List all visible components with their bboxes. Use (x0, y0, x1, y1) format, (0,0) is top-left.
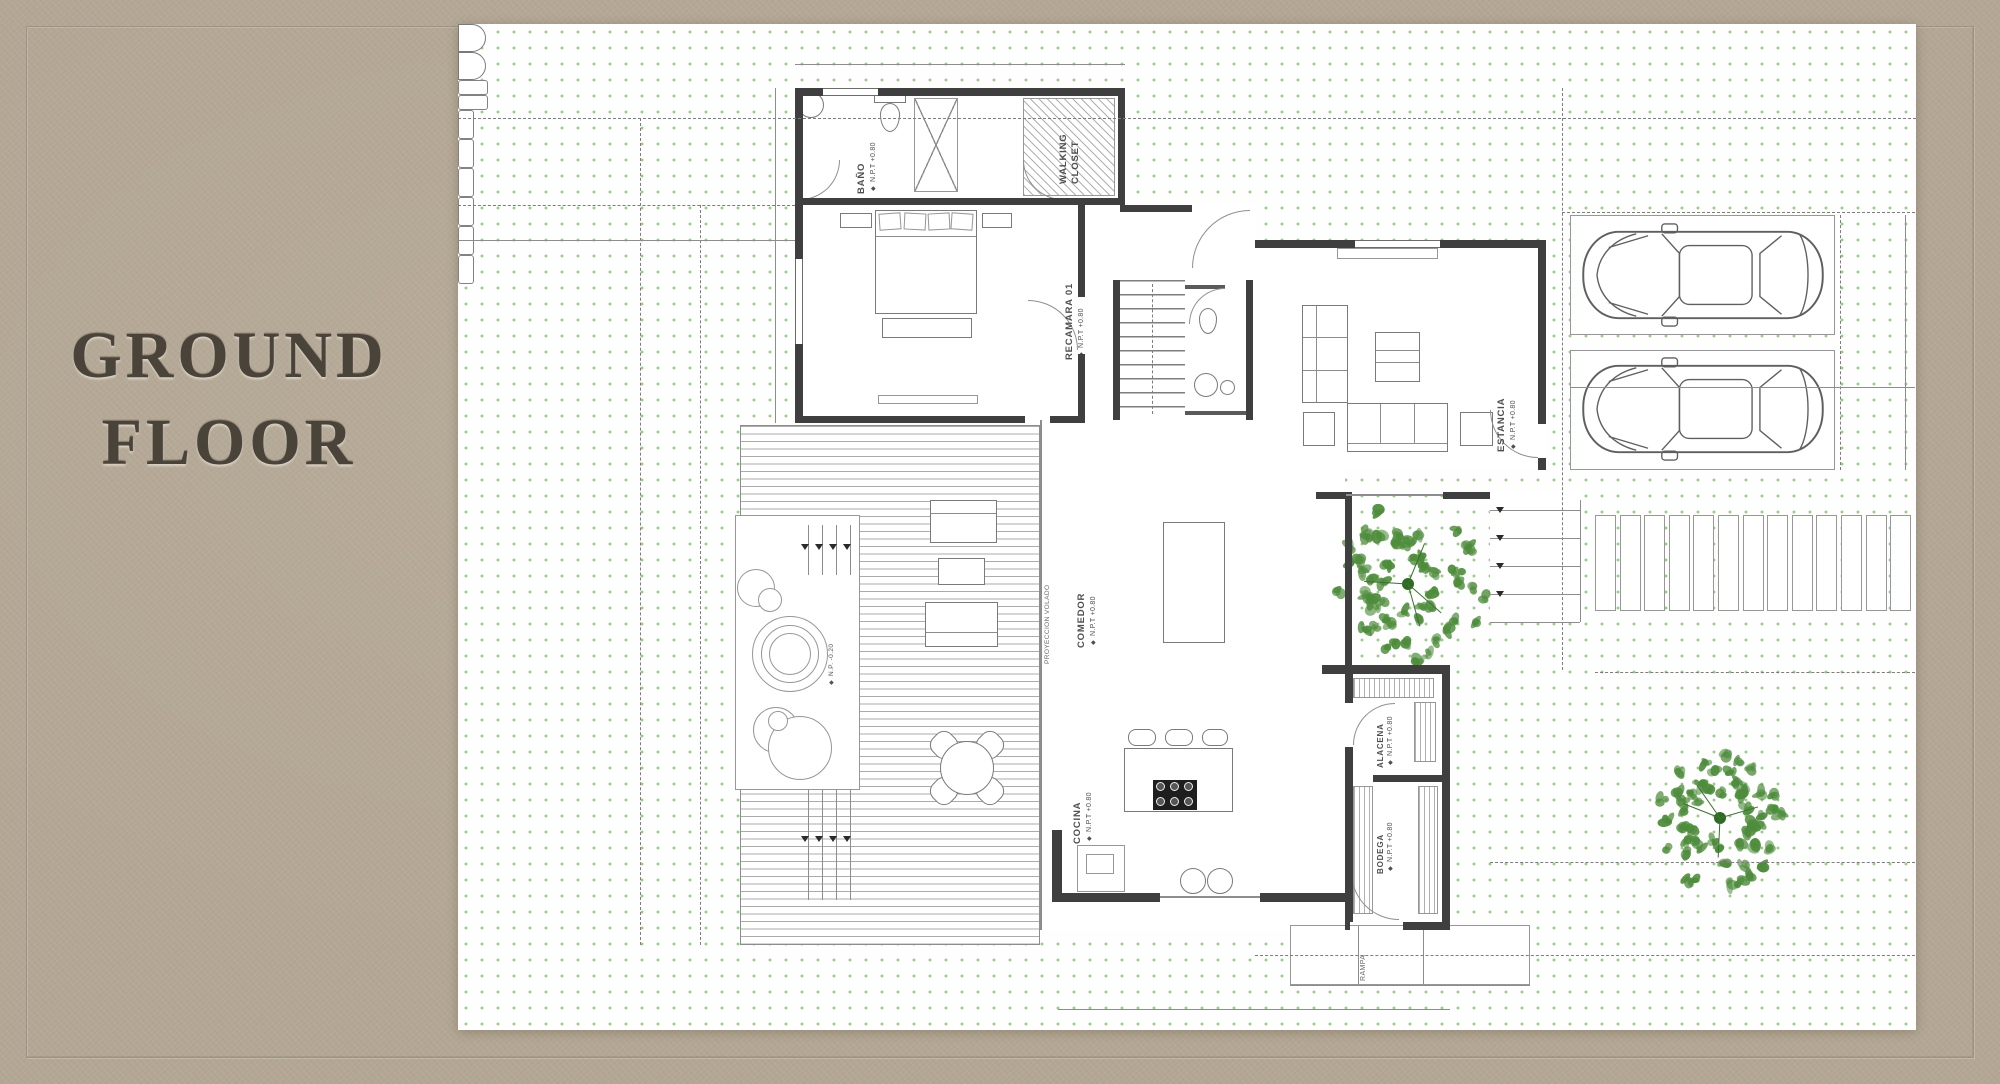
wall (1538, 458, 1546, 470)
wall (1538, 240, 1546, 424)
step-line (1490, 622, 1580, 623)
paver (1669, 515, 1690, 611)
shower-icon (914, 98, 958, 192)
paver (1767, 515, 1788, 611)
paver (1620, 515, 1641, 611)
sofa-cushion-line (1414, 404, 1415, 444)
boundary-dashed-line (700, 205, 701, 945)
paver (1693, 515, 1714, 611)
water-level-label: ◆ N.P. -0.20 (828, 622, 837, 686)
step-line (850, 790, 851, 900)
paver (1890, 515, 1911, 611)
level-text: N.P.T +0.80 (1078, 309, 1087, 349)
level-diamond-icon: ◆ (1511, 443, 1517, 450)
car-icon (1578, 356, 1828, 462)
wall (1246, 280, 1253, 420)
room-label-comedor: COMEDOR ◆ N.P.T +0.80 (1076, 548, 1100, 648)
step-arrow-icon (801, 544, 809, 550)
step-arrow-icon (815, 836, 823, 842)
wall (1118, 88, 1125, 205)
sofa-cushion-line (1303, 370, 1347, 371)
level-diamond-icon: ◆ (1091, 639, 1097, 646)
step-arrow-icon (843, 544, 851, 550)
level-text: N.P.T +0.80 (870, 143, 879, 183)
sofa-cushion-line (1316, 306, 1317, 402)
paver (1866, 515, 1887, 611)
dimension-line (1346, 494, 1443, 496)
boundary-dashed-line (1840, 215, 1841, 470)
room-name: RECAMARA 01 (1064, 283, 1076, 360)
wall (1058, 893, 1160, 902)
sofa-back-line (931, 513, 996, 514)
level-text: N.P.T +0.80 (1510, 401, 1519, 441)
wall (1120, 205, 1192, 212)
window (823, 88, 878, 96)
pillow (878, 212, 901, 230)
bar-stool (1128, 729, 1156, 746)
step-line (836, 790, 837, 900)
dining-chair (458, 80, 488, 95)
boulder (768, 711, 788, 731)
side-table (1303, 412, 1335, 446)
outdoor-table (938, 558, 985, 585)
step-arrow-icon (829, 836, 837, 842)
drain-icon (1220, 380, 1235, 395)
wall (795, 416, 1025, 423)
dining-chair (458, 110, 474, 139)
dining-chair (458, 139, 474, 168)
planter-icon (1207, 868, 1233, 894)
wall (795, 198, 1125, 205)
title-line-1: GROUND (0, 312, 458, 399)
room-name: COCINA (1072, 802, 1084, 844)
paver (1595, 515, 1616, 611)
step-arrow-icon (829, 544, 837, 550)
wall (1078, 205, 1085, 297)
level-text: N.P.T +0.80 (1387, 823, 1396, 863)
boundary-dashed-line (640, 118, 641, 945)
tree-icon (1315, 491, 1501, 677)
armchair (458, 24, 486, 52)
water-feature-ring (769, 633, 811, 675)
boundary-dashed-line (1595, 672, 1915, 673)
sofa (1347, 403, 1448, 452)
step-arrow-icon (1496, 591, 1504, 597)
nightstand (982, 213, 1012, 228)
wall (1403, 922, 1450, 930)
room-level: ◆ N.P.T +0.80 (1387, 823, 1396, 872)
projection-text: PROYECCION VOLADO (1044, 585, 1052, 664)
wall (1345, 747, 1353, 922)
pillow (950, 212, 973, 230)
step-line (836, 525, 837, 575)
stair-direction-line (1152, 284, 1153, 414)
projection-label: PROYECCION VOLADO (1044, 544, 1052, 664)
table-line (1376, 350, 1419, 351)
dining-chair (458, 255, 474, 284)
step-line (808, 525, 809, 575)
car-icon (1578, 222, 1828, 328)
coffee-table (1375, 332, 1420, 382)
boundary-dashed-line (1562, 212, 1915, 213)
room-name: ESTANCIA (1496, 398, 1508, 452)
level-diamond-icon: ◆ (829, 679, 835, 686)
wall (1113, 280, 1120, 420)
stove-icon (1153, 780, 1197, 810)
pillow (904, 212, 927, 230)
wall (1078, 354, 1085, 423)
boundary-dashed-line (1562, 88, 1563, 670)
dimension-line (1570, 387, 1915, 388)
sofa-cushion-line (1303, 337, 1347, 338)
step-line (808, 790, 809, 900)
dimension-line (775, 88, 776, 423)
wall (1322, 665, 1450, 674)
ramp-text: RAMPA (1360, 955, 1369, 981)
ramp-line (1290, 985, 1530, 986)
wall (1260, 893, 1345, 902)
paver (1743, 515, 1764, 611)
room-label-estancia: ESTANCIA ◆ N.P.T +0.80 (1496, 352, 1520, 452)
room-name: BODEGA (1376, 834, 1386, 874)
outdoor-sofa (925, 602, 998, 647)
dining-table (1163, 522, 1225, 643)
sofa-back-line (926, 632, 997, 633)
dimension-line (1058, 1009, 1450, 1010)
paver (1816, 515, 1837, 611)
step-line (822, 525, 823, 575)
bar-stool (1165, 729, 1193, 746)
room-name: COMEDOR (1076, 593, 1088, 648)
wall (1442, 665, 1450, 930)
step-arrow-icon (1496, 535, 1504, 541)
room-level: ◆ N.P.T +0.80 (1510, 401, 1519, 450)
room-label-walking-closet: WALKING CLOSET (1058, 120, 1082, 184)
bar-stool (1202, 729, 1228, 746)
table-line (1376, 362, 1419, 363)
planter-icon (1180, 868, 1206, 894)
level-diamond-icon: ◆ (1388, 865, 1394, 872)
wall (1373, 775, 1450, 782)
wall (1316, 492, 1346, 499)
room-level: ◆ N.P.T +0.80 (1086, 793, 1095, 842)
side-table (1460, 412, 1493, 446)
bodega-shelf (1418, 786, 1438, 914)
wall (1185, 411, 1250, 415)
title-line-2: FLOOR (0, 399, 458, 486)
room-name: ALACENA (1376, 723, 1386, 768)
bed-bench (882, 318, 972, 338)
room-name: WALKING CLOSET (1058, 120, 1082, 184)
paver (1718, 515, 1739, 611)
kitchen-sink-icon (1086, 854, 1114, 874)
sofa-back-line (1348, 443, 1447, 444)
level-text: N.P. -0.20 (828, 644, 836, 676)
level-text: N.P.T +0.80 (1387, 717, 1396, 757)
dimension-line (1040, 420, 1042, 930)
paver (1644, 515, 1665, 611)
room-label-cocina: COCINA ◆ N.P.T +0.80 (1072, 754, 1096, 844)
room-level: ◆ N.P.T +0.80 (1090, 597, 1099, 646)
dining-chair (458, 95, 488, 110)
room-label-alacena: ALACENA ◆ N.P.T +0.80 (1376, 690, 1396, 768)
outdoor-sofa (930, 500, 997, 543)
dimension-line (458, 240, 795, 241)
dresser (878, 395, 978, 404)
room-level: ◆ N.P.T +0.80 (870, 143, 879, 192)
wall (1345, 492, 1352, 667)
room-level: ◆ N.P.T +0.80 (1078, 309, 1087, 358)
sliding-door (1160, 896, 1260, 898)
room-label-bodega: BODEGA ◆ N.P.T +0.80 (1376, 796, 1396, 874)
wall (1345, 665, 1353, 703)
ground-floor-plan-sheet: BAÑO ◆ N.P.T +0.80 WALKING CLOSET RECAMA… (458, 24, 1916, 1030)
level-diamond-icon: ◆ (1388, 759, 1394, 766)
wall (1052, 830, 1062, 902)
boundary-dashed-line (458, 118, 1916, 119)
level-diamond-icon: ◆ (1087, 835, 1093, 842)
boundary-dashed-line (458, 205, 795, 206)
tv-console (1337, 248, 1438, 259)
dining-chair (458, 168, 474, 197)
step-line (822, 790, 823, 900)
paver (1841, 515, 1862, 611)
boundary-dashed-line (1490, 862, 1915, 863)
step-arrow-icon (843, 836, 851, 842)
dimension-line (795, 64, 1125, 65)
step-line (850, 525, 851, 575)
dining-chair (458, 197, 474, 226)
room-label-bano: BAÑO ◆ N.P.T +0.80 (856, 122, 880, 194)
sofa-cushion-line (1380, 404, 1381, 444)
step-arrow-icon (1496, 507, 1504, 513)
alacena-shelf (1414, 702, 1436, 762)
dimension-line (1580, 500, 1581, 622)
pillow (928, 212, 951, 230)
step-arrow-icon (801, 836, 809, 842)
step-arrow-icon (815, 544, 823, 550)
boundary-dashed-line (1255, 955, 1915, 956)
room-name: BAÑO (856, 163, 868, 194)
boulder (758, 588, 782, 612)
level-text: N.P.T +0.80 (1086, 793, 1095, 833)
paver (1792, 515, 1813, 611)
sofa (1302, 305, 1348, 403)
level-text: N.P.T +0.80 (1090, 597, 1099, 637)
wall (1443, 492, 1490, 499)
dimension-line (1905, 215, 1906, 470)
page-title: GROUND FLOOR (0, 312, 458, 486)
nightstand (840, 213, 872, 228)
wall (1345, 922, 1350, 930)
water-level-text: ◆ N.P. -0.20 (828, 644, 837, 686)
armchair (458, 52, 486, 80)
bed-blanket-line (876, 236, 976, 237)
step-arrow-icon (1496, 563, 1504, 569)
window (795, 259, 803, 344)
window (1355, 240, 1440, 248)
patio-table (940, 741, 994, 795)
room-level: ◆ N.P.T +0.80 (1387, 717, 1396, 766)
wall (795, 88, 803, 423)
sink-icon (1194, 373, 1218, 397)
level-diamond-icon: ◆ (871, 185, 877, 192)
page: GROUND FLOOR (0, 0, 2000, 1084)
tree-icon (1632, 730, 1808, 906)
